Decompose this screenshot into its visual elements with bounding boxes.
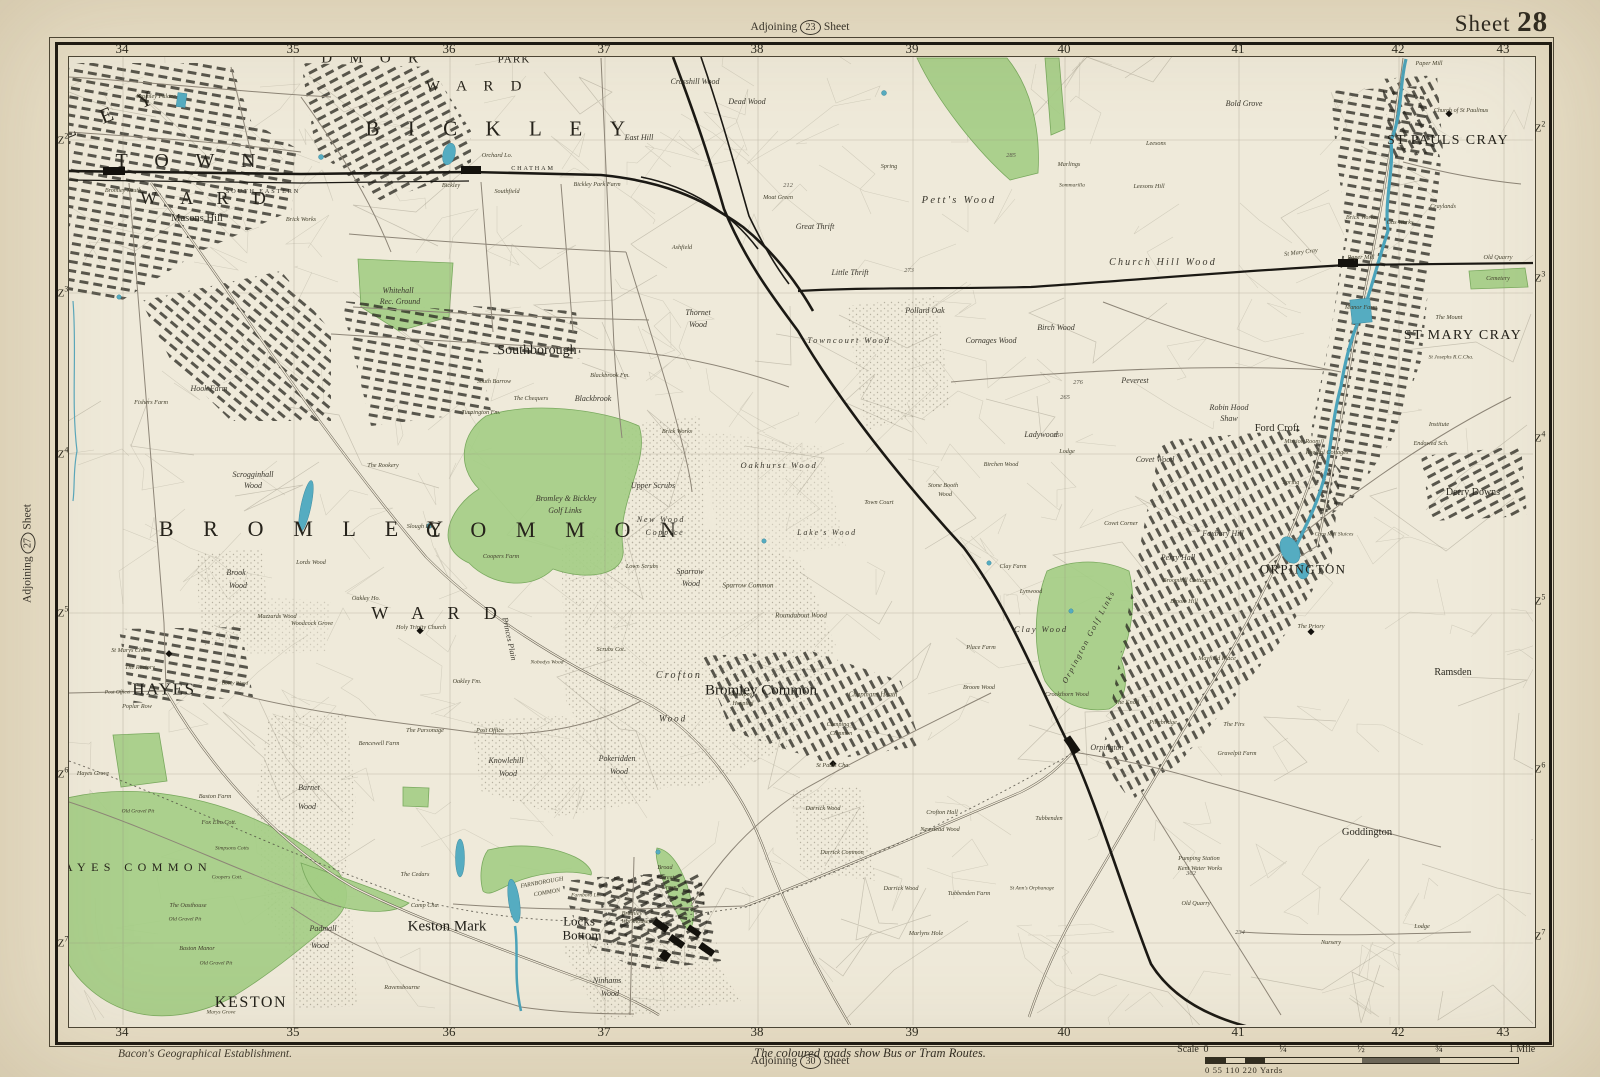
map-label: Craylands bbox=[1430, 204, 1456, 210]
map-label: Paper Mill bbox=[1348, 255, 1375, 261]
map-label: Moat Green bbox=[763, 195, 793, 201]
map-label: Post Office bbox=[105, 690, 130, 696]
map-label: KESTON bbox=[215, 995, 287, 1011]
map-label: Tubbenden Farm bbox=[948, 891, 990, 897]
map-label: Pett's Wood bbox=[922, 196, 997, 207]
map-label: Town Court bbox=[864, 500, 893, 506]
map-label: Leesons bbox=[1146, 141, 1166, 147]
map-label: C O M M O N bbox=[426, 519, 688, 541]
map-label: Wood bbox=[689, 321, 707, 329]
map-label: ST MARY CRAY bbox=[1404, 329, 1522, 343]
map-label: Broom Wood bbox=[963, 685, 995, 691]
map-label: Fishers Farm bbox=[134, 400, 168, 406]
map-label: Wood bbox=[682, 580, 700, 588]
map-label: Bromley Palace bbox=[136, 94, 175, 100]
map-label: Ladywood bbox=[1024, 431, 1057, 439]
map-label: Ninhams bbox=[593, 977, 621, 985]
scale-zero: 0 bbox=[1204, 1044, 1209, 1055]
map-label: Ravensbourne bbox=[384, 985, 419, 991]
z-row-marker: Z3 bbox=[58, 285, 69, 300]
map-label: Perry Hall bbox=[1161, 554, 1195, 562]
map-label: St Ann's Orphanage bbox=[1010, 886, 1054, 892]
map-label: The Rectory bbox=[125, 665, 155, 671]
scale-bar-rule bbox=[1205, 1057, 1519, 1064]
map-label: 285 bbox=[1006, 153, 1016, 160]
map-label: The Chequers bbox=[514, 396, 549, 402]
map-label: Paper Mill bbox=[1416, 61, 1443, 67]
map-label: Marys Grove bbox=[207, 1010, 236, 1016]
map-label: Woodcock Grove bbox=[291, 621, 333, 627]
map-label: Poplar Row bbox=[122, 704, 152, 710]
map-label: ST PAULS CRAY bbox=[1387, 134, 1509, 148]
grid-number: 35 bbox=[287, 1024, 300, 1040]
map-label: L E Y bbox=[69, 83, 167, 143]
scale-label: Scale bbox=[1177, 1044, 1199, 1055]
map-label: Hook Farm bbox=[190, 385, 227, 393]
map-label: Blackbrook Fm. bbox=[590, 373, 630, 379]
map-label: Birch Wood bbox=[1037, 324, 1074, 332]
z-row-marker: Z6 bbox=[1535, 761, 1546, 776]
map-label: Clay Wood bbox=[1014, 625, 1068, 634]
map-label: Fox Elm Cott. bbox=[202, 820, 237, 826]
grid-number: 38 bbox=[751, 41, 764, 57]
grid-number: 43 bbox=[1497, 1024, 1510, 1040]
map-label: Shaw bbox=[1220, 415, 1237, 423]
z-row-marker: Z7 bbox=[58, 935, 69, 950]
map-label: 276 bbox=[1073, 380, 1083, 387]
map-label: Bromley bbox=[622, 911, 643, 917]
map-label: Slough Fm. bbox=[407, 524, 436, 530]
map-label: 273 bbox=[904, 268, 914, 275]
map-label: Old Gravel Pit bbox=[169, 917, 202, 923]
map-label: Spring bbox=[1283, 480, 1300, 486]
map-label: Marlyns Hole bbox=[909, 931, 943, 937]
map-label: Bromley & Bickley bbox=[536, 495, 597, 503]
map-label: Gas Works bbox=[1387, 220, 1414, 226]
z-row-marker: Z3 bbox=[1535, 270, 1546, 285]
map-label: Institute bbox=[1429, 422, 1449, 428]
map-label: Roundabout Wood bbox=[775, 613, 827, 620]
map-label: The Parsonage bbox=[406, 728, 444, 734]
scale-half: ½ bbox=[1357, 1044, 1365, 1055]
adjoining-left-note: Adjoining 27 Sheet bbox=[21, 474, 36, 634]
map-label: Chapmans Heath bbox=[849, 692, 898, 699]
map-label: Towncourt Wood bbox=[807, 336, 890, 345]
map-label: Bencewell Farm bbox=[359, 741, 400, 747]
map-label: Baston Manor bbox=[179, 946, 215, 952]
map-label: Mazzards Wood bbox=[257, 614, 296, 620]
map-label: Darrick Wood bbox=[883, 886, 918, 892]
grid-number: 42 bbox=[1392, 1024, 1405, 1040]
map-label: Old Quarry bbox=[1181, 901, 1210, 907]
map-label: Great Thrift bbox=[796, 223, 835, 231]
map-label: Brick Works bbox=[286, 217, 316, 223]
map-label: Orchard Lo. bbox=[482, 153, 512, 159]
map-label: Darrick Common bbox=[820, 850, 863, 856]
map-label: Lodge bbox=[1414, 924, 1429, 930]
map-label: Lynwood bbox=[1020, 589, 1043, 595]
grid-number: 35 bbox=[287, 41, 300, 57]
map-label: Mayfield Place bbox=[1198, 656, 1236, 662]
map-label: Common bbox=[830, 731, 852, 737]
grid-number: 38 bbox=[751, 1024, 764, 1040]
map-label: Newstead Wood bbox=[920, 827, 959, 833]
map-label: Upper Scrubs bbox=[631, 482, 675, 490]
map-label: Nursery bbox=[1321, 940, 1341, 946]
grid-number: 34 bbox=[116, 41, 129, 57]
map-label: B R O M L E Y bbox=[159, 518, 455, 540]
map-label: Orpington bbox=[1090, 744, 1123, 752]
map-label: St Mary Cray bbox=[1284, 248, 1318, 258]
map-label: Endowed Sch. bbox=[1413, 441, 1448, 447]
map-label: Dead Wood bbox=[728, 98, 765, 106]
map-label: Marlings bbox=[1058, 162, 1081, 168]
map-label: Stone Booth bbox=[928, 483, 958, 489]
grid-number: 40 bbox=[1058, 1024, 1071, 1040]
grid-number: 37 bbox=[598, 1024, 611, 1040]
map-label: Masons Hill bbox=[171, 214, 223, 225]
map-label: Pumping Station bbox=[1178, 856, 1219, 862]
map-label: Birchen Wood bbox=[984, 462, 1019, 468]
map-label: Old Gravel Pit bbox=[122, 809, 155, 815]
map-label: Bickley bbox=[442, 183, 460, 189]
map-label: Pollard Oak bbox=[905, 307, 944, 315]
map-label: Tubbenden bbox=[1035, 816, 1062, 822]
map-label: HAYES bbox=[132, 681, 196, 698]
grid-number: 43 bbox=[1497, 41, 1510, 57]
scale-bar: Scale 0 ¼ ½ ¾ 1 Mile 0 55 110 220 Yards bbox=[1170, 1044, 1560, 1074]
map-label: 302 bbox=[1186, 871, 1196, 878]
map-label: Camp Cha. bbox=[411, 903, 439, 909]
map-label: Old Gravel Pit bbox=[200, 961, 233, 967]
map-label: Pinebridge bbox=[1149, 720, 1177, 726]
map-label: B I C K L E Y bbox=[365, 119, 636, 140]
map-label: Clay Farm bbox=[1000, 564, 1027, 570]
map-label: The Cedars bbox=[401, 872, 430, 878]
map-label: Coppice bbox=[646, 529, 685, 537]
map-label: Crofton Hall bbox=[926, 810, 958, 816]
map-label: FARNBOROUGH bbox=[520, 876, 564, 889]
grid-number: 39 bbox=[906, 41, 919, 57]
map-label: St Pauls Cha. bbox=[816, 763, 850, 769]
scale-mile: 1 Mile bbox=[1509, 1044, 1535, 1055]
map-label: Bold Grove bbox=[1226, 100, 1263, 108]
map-label: Boldy Wood bbox=[222, 681, 249, 687]
map-label: Rheidol Cottages bbox=[1306, 450, 1349, 456]
map-label: Wood bbox=[298, 803, 316, 811]
map-label: Ford Croft bbox=[1255, 424, 1300, 435]
map-label: Whitehall bbox=[382, 287, 413, 295]
map-label: Scrogginhall bbox=[232, 471, 273, 479]
map-label: Sommarilla bbox=[1059, 183, 1085, 189]
map-label: Oakhurst Wood bbox=[740, 461, 817, 470]
map-label: Mission Room bbox=[1284, 439, 1320, 445]
map-label: Lake's Wood bbox=[797, 529, 857, 537]
map-label: Wood bbox=[311, 942, 329, 950]
map-label: Lowr. Scrubs bbox=[626, 564, 658, 570]
map-label: Oakley Fm. bbox=[453, 679, 482, 685]
map-label: Gravelpit Farm bbox=[1217, 751, 1256, 757]
map-label: Wood bbox=[938, 492, 952, 498]
adjoining-top-number: 23 bbox=[800, 20, 821, 35]
grid-number: 37 bbox=[598, 41, 611, 57]
map-label: Broom Hill bbox=[1170, 599, 1198, 605]
map-label: Ramsden bbox=[1434, 668, 1471, 678]
map-label: Blackbrook bbox=[575, 395, 612, 403]
z-row-marker: Z7 bbox=[1535, 928, 1546, 943]
grid-number: 36 bbox=[443, 41, 456, 57]
z-row-marker: Z5 bbox=[58, 605, 69, 620]
map-label: The Oasthouse bbox=[170, 903, 207, 909]
map-label: 265 bbox=[1060, 395, 1070, 402]
map-label: Covet Corner bbox=[1104, 521, 1138, 527]
scale-three-quarter: ¾ bbox=[1435, 1044, 1443, 1055]
map-label: Southfield bbox=[494, 189, 519, 195]
map-label: Wood bbox=[499, 770, 517, 778]
map-label: The Knoll bbox=[1115, 700, 1140, 706]
map-label: Ashfield bbox=[672, 245, 692, 251]
map-label: Broad bbox=[657, 865, 672, 871]
map-label: Padmall bbox=[309, 925, 336, 933]
map-label: PARK bbox=[498, 57, 531, 66]
map-label: Foxbury Hill bbox=[1202, 530, 1244, 538]
z-row-marker: Z2 bbox=[1535, 120, 1546, 135]
map-label: Darrick Wood bbox=[805, 806, 840, 812]
map-label: The Rookery bbox=[367, 463, 398, 469]
map-label: Green bbox=[661, 885, 676, 891]
grid-number: 41 bbox=[1232, 1024, 1245, 1040]
map-label: Wood bbox=[244, 482, 262, 490]
map-label: Broomhill Cottages bbox=[1163, 578, 1211, 584]
map-canvas: L E YT O W NW A R DD M O RW A R DPARKB I… bbox=[69, 57, 1533, 1025]
map-label: Lords Wood bbox=[296, 560, 326, 566]
map-label: CHATHAM bbox=[511, 166, 555, 172]
map-label: The Priory bbox=[1298, 624, 1325, 630]
map-label: Brick Works bbox=[662, 429, 692, 435]
map-label: Manor Farm bbox=[1345, 305, 1377, 311]
map-label: Cornages Wood bbox=[965, 337, 1016, 345]
map-label: Wood bbox=[229, 582, 247, 590]
map-label: Derry Downs bbox=[1446, 488, 1500, 498]
map-label: Hayes Grove bbox=[77, 771, 109, 777]
map-label: W A R D bbox=[426, 80, 528, 95]
map-label: Church Hill Wood bbox=[1109, 258, 1217, 268]
map-label: Southborough bbox=[497, 344, 576, 358]
map-label: SOUTH EASTERN bbox=[226, 189, 300, 195]
map-label: 212 bbox=[783, 183, 793, 190]
map-label: Kent Water Works bbox=[1178, 866, 1223, 872]
map-label: Oakley Ho. bbox=[352, 596, 380, 602]
map-label: Wood bbox=[659, 715, 687, 724]
map-label: Workhouse bbox=[621, 919, 648, 925]
map-label: Goddington bbox=[1342, 828, 1392, 839]
map-label: Golf Links bbox=[548, 507, 582, 515]
map-label: Bottom bbox=[562, 929, 601, 942]
map-label: Bromley South bbox=[105, 188, 141, 194]
map-label: Pokeridden bbox=[599, 755, 636, 763]
grid-number: 34 bbox=[116, 1024, 129, 1040]
map-label: Bromley Common bbox=[705, 684, 817, 699]
map-label: 234 bbox=[1235, 930, 1245, 937]
map-label: Knowlehill bbox=[488, 757, 523, 765]
map-label: Camping bbox=[827, 722, 850, 728]
map-label: Covet Wood bbox=[1136, 456, 1175, 464]
map-label: T O W N bbox=[116, 151, 267, 171]
map-label: Spring bbox=[881, 164, 898, 170]
grid-number: 36 bbox=[443, 1024, 456, 1040]
map-label: Baston Farm bbox=[199, 794, 231, 800]
map-label: Smallpox bbox=[729, 692, 752, 698]
map-label: The Mount bbox=[1436, 315, 1463, 321]
map-label: Hospital bbox=[732, 701, 753, 707]
map-label: Bickley Park Farm bbox=[573, 182, 620, 188]
scale-quarter: ¼ bbox=[1279, 1044, 1287, 1055]
map-label: HAYES COMMON bbox=[69, 861, 212, 873]
map-label: Brick Works bbox=[1346, 215, 1376, 221]
z-row-marker: Z4 bbox=[1535, 430, 1546, 445]
map-label: Place Farm bbox=[966, 645, 995, 651]
z-row-marker: Z6 bbox=[58, 766, 69, 781]
map-label: Coopers Cott. bbox=[212, 875, 243, 881]
grid-number: 40 bbox=[1058, 41, 1071, 57]
map-label: Street bbox=[660, 875, 674, 881]
map-label: Coopers Farm bbox=[483, 554, 519, 560]
map-label: Nobodys Wood bbox=[531, 660, 564, 666]
map-label-layer: L E YT O W NW A R DD M O RW A R DPARKB I… bbox=[69, 57, 1533, 1025]
map-label: Wood bbox=[601, 990, 619, 998]
map-label: Sparrow bbox=[676, 568, 703, 576]
map-label: The Firs bbox=[1223, 722, 1244, 728]
map-label: New Wood bbox=[637, 516, 685, 524]
map-label: Robin Hood bbox=[1210, 404, 1249, 412]
map-label: Wood bbox=[610, 768, 628, 776]
map-label: Scrubs Cot. bbox=[597, 647, 626, 653]
map-label: Crofton bbox=[656, 671, 702, 681]
map-label: 250 bbox=[1053, 433, 1063, 440]
map-label: Keston Mark bbox=[408, 920, 487, 935]
map-label: Crockthorn Wood bbox=[1045, 692, 1089, 698]
map-label: Rec. Ground bbox=[380, 298, 421, 306]
map-label: Lodge bbox=[1059, 449, 1074, 455]
map-label: W A R D bbox=[140, 189, 275, 207]
map-label: Sparrow Common bbox=[723, 583, 774, 590]
map-label: Peverest bbox=[1121, 377, 1148, 385]
map-label: Post Office bbox=[476, 728, 504, 734]
map-label: Princes Plain bbox=[501, 617, 518, 661]
map-label: Turpington Fm. bbox=[462, 410, 501, 416]
z-row-marker: Z2 bbox=[58, 132, 69, 147]
grid-number: 39 bbox=[906, 1024, 919, 1040]
map-label: Crosshill Wood bbox=[671, 78, 720, 86]
map-label: Simpsons Cotts bbox=[215, 846, 249, 852]
map-label: Orpington Golf Links bbox=[1061, 589, 1117, 685]
map-label: Cemetery bbox=[1486, 276, 1510, 282]
map-label: W A R D bbox=[371, 604, 506, 622]
map-label: Leesons Hill bbox=[1133, 184, 1164, 190]
map-label: Little Thrift bbox=[831, 269, 868, 277]
adjoining-top-note: Adjoining 23 Sheet bbox=[0, 20, 1600, 35]
z-row-marker: Z4 bbox=[58, 446, 69, 461]
map-label: St Marys Cha. bbox=[111, 648, 147, 654]
map-label: Locks bbox=[563, 915, 595, 928]
z-row-marker: Z5 bbox=[1535, 593, 1546, 608]
map-label: Farnboro Lo. bbox=[571, 893, 601, 899]
map-label: ORPINGTON bbox=[1260, 563, 1347, 576]
grid-number: 42 bbox=[1392, 41, 1405, 57]
map-label: St Josephs R.C.Cha. bbox=[1429, 355, 1474, 361]
scale-yards: 0 55 110 220 Yards bbox=[1205, 1065, 1283, 1075]
map-label: Church of St Paulinus bbox=[1434, 108, 1489, 114]
adjoining-left-number: 27 bbox=[21, 532, 36, 553]
map-label: South Barrow bbox=[477, 379, 511, 385]
map-label: D M O R bbox=[321, 57, 425, 67]
map-label: East Hill bbox=[625, 134, 654, 142]
map-label: Barnet bbox=[298, 784, 320, 792]
grid-number: 41 bbox=[1232, 41, 1245, 57]
map-label: Corn Mill Sluices bbox=[1315, 532, 1354, 538]
map-label: COMMON bbox=[533, 888, 560, 899]
map-label: Old Quarry bbox=[1483, 255, 1512, 261]
map-sheet-page: Sheet 28 Adjoining 23 Sheet Adjoining 30… bbox=[0, 0, 1600, 1077]
map-label: Holy Trinity Church bbox=[396, 625, 446, 631]
map-label: Thornet bbox=[685, 309, 710, 317]
map-label: Brook bbox=[226, 569, 245, 577]
